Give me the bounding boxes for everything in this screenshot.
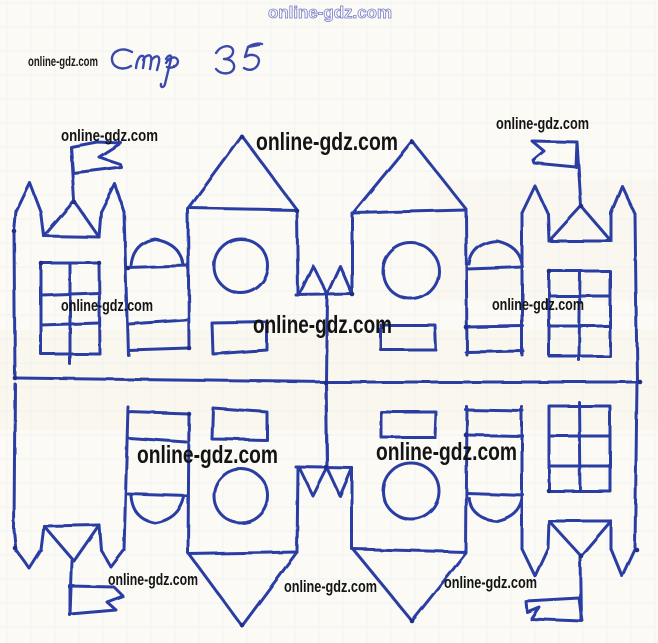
svg-text:online-gdz.com: online-gdz.com: [444, 573, 537, 592]
svg-text:online-gdz.com: online-gdz.com: [496, 114, 589, 133]
svg-text:online-gdz.com: online-gdz.com: [108, 570, 198, 589]
svg-text:online-gdz.com: online-gdz.com: [137, 441, 278, 469]
svg-text:online-gdz.com: online-gdz.com: [256, 128, 398, 156]
svg-text:online-gdz.com: online-gdz.com: [61, 296, 153, 315]
svg-text:online-gdz.com: online-gdz.com: [376, 438, 517, 466]
svg-text:online-gdz.com: online-gdz.com: [284, 577, 377, 596]
svg-text:online-gdz.com: online-gdz.com: [61, 126, 158, 145]
svg-text:online-gdz.com: online-gdz.com: [268, 3, 392, 22]
svg-text:online-gdz.com: online-gdz.com: [253, 311, 392, 339]
svg-text:online-gdz.com: online-gdz.com: [492, 295, 584, 314]
svg-text:online-gdz.com: online-gdz.com: [28, 53, 98, 69]
